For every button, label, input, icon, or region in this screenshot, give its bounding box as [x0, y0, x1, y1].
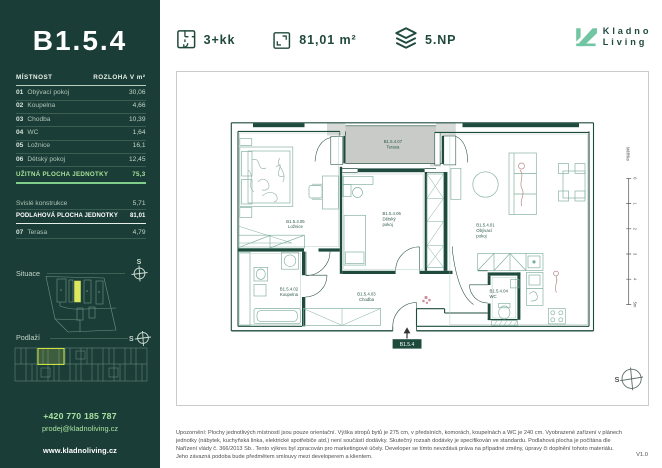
svg-text:0: 0 — [633, 177, 638, 180]
svg-text:B1.5.4: B1.5.4 — [400, 342, 415, 348]
svg-text:pokoj: pokoj — [383, 222, 393, 227]
svg-text:Měřítko: Měřítko — [626, 147, 631, 162]
svg-text:B1.5.4.04: B1.5.4.04 — [490, 289, 509, 294]
svg-text:Obývací: Obývací — [476, 228, 493, 233]
svg-text:4: 4 — [633, 278, 638, 281]
svg-text:3: 3 — [633, 253, 638, 256]
svg-text:S: S — [615, 375, 620, 384]
svg-text:Ložnice: Ložnice — [288, 224, 303, 229]
svg-text:Koupelna: Koupelna — [280, 292, 299, 297]
svg-text:S: S — [137, 259, 142, 266]
svg-text:B1.5.4.03: B1.5.4.03 — [357, 292, 376, 297]
svg-text:5m: 5m — [633, 302, 638, 308]
svg-text:Terasa: Terasa — [386, 145, 400, 150]
svg-text:B1.5.4.06: B1.5.4.06 — [383, 211, 402, 216]
svg-text:B1.5.4.01: B1.5.4.01 — [476, 223, 495, 228]
svg-text:Dětský: Dětský — [383, 217, 397, 222]
svg-text:pokoj: pokoj — [476, 234, 486, 239]
svg-text:B1.5.4.07: B1.5.4.07 — [384, 139, 403, 144]
svg-text:1: 1 — [633, 202, 638, 205]
svg-text:WC: WC — [490, 294, 497, 299]
svg-text:B1.5.4.02: B1.5.4.02 — [280, 286, 299, 291]
svg-text:2: 2 — [633, 228, 638, 231]
svg-text:B1.5.4.05: B1.5.4.05 — [286, 219, 305, 224]
svg-text:Chodba: Chodba — [359, 297, 375, 302]
svg-text:S: S — [129, 336, 134, 343]
